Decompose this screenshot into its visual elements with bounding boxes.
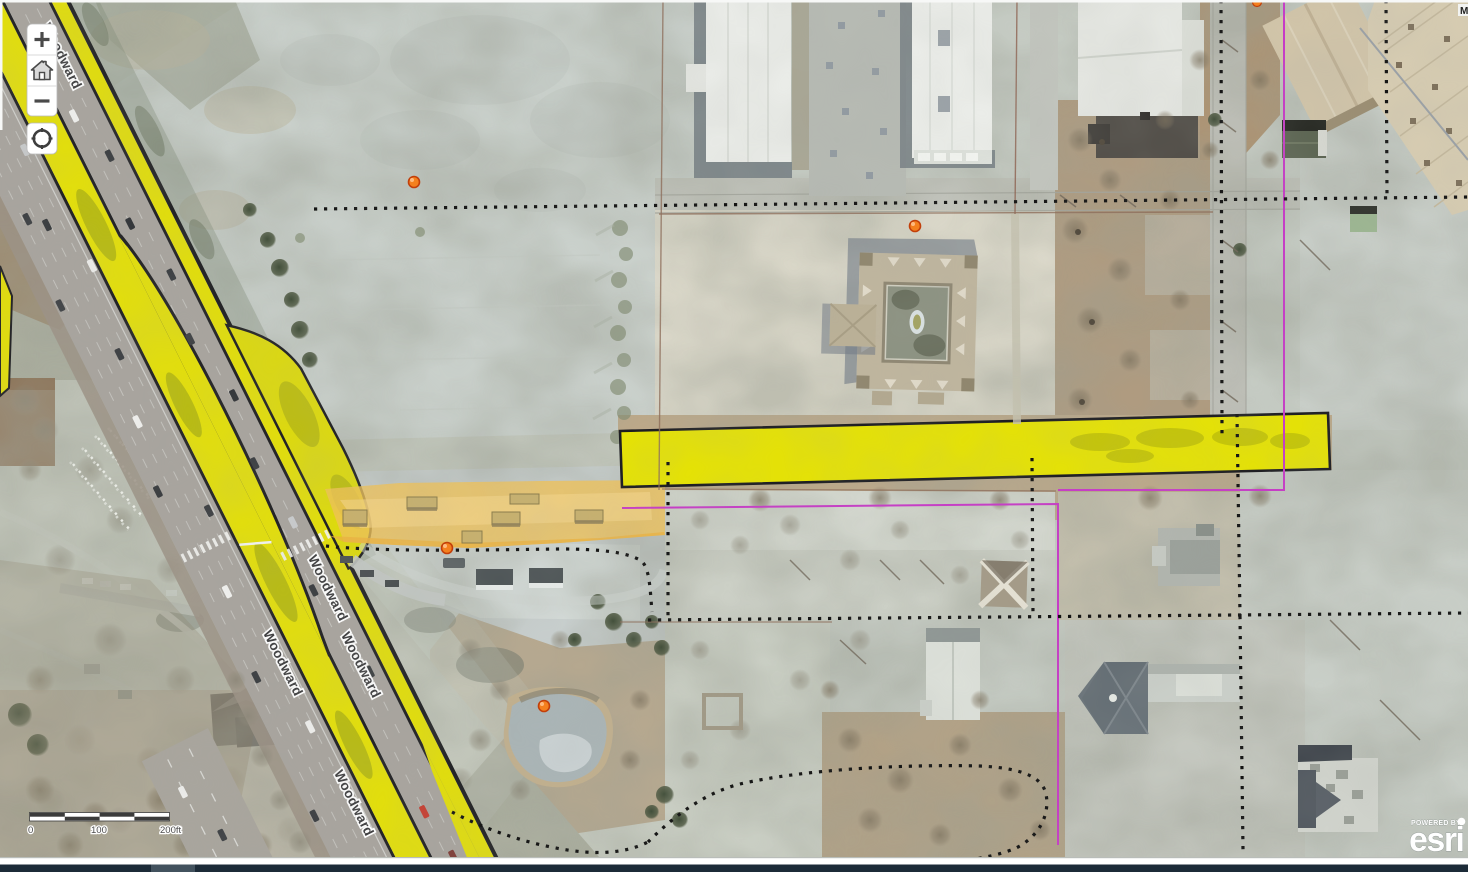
svg-text:100: 100: [91, 825, 107, 836]
svg-text:200ft: 200ft: [160, 825, 181, 836]
svg-text:0: 0: [28, 825, 33, 836]
svg-text:esri: esri: [1409, 821, 1464, 859]
svg-text:M: M: [1460, 6, 1468, 17]
